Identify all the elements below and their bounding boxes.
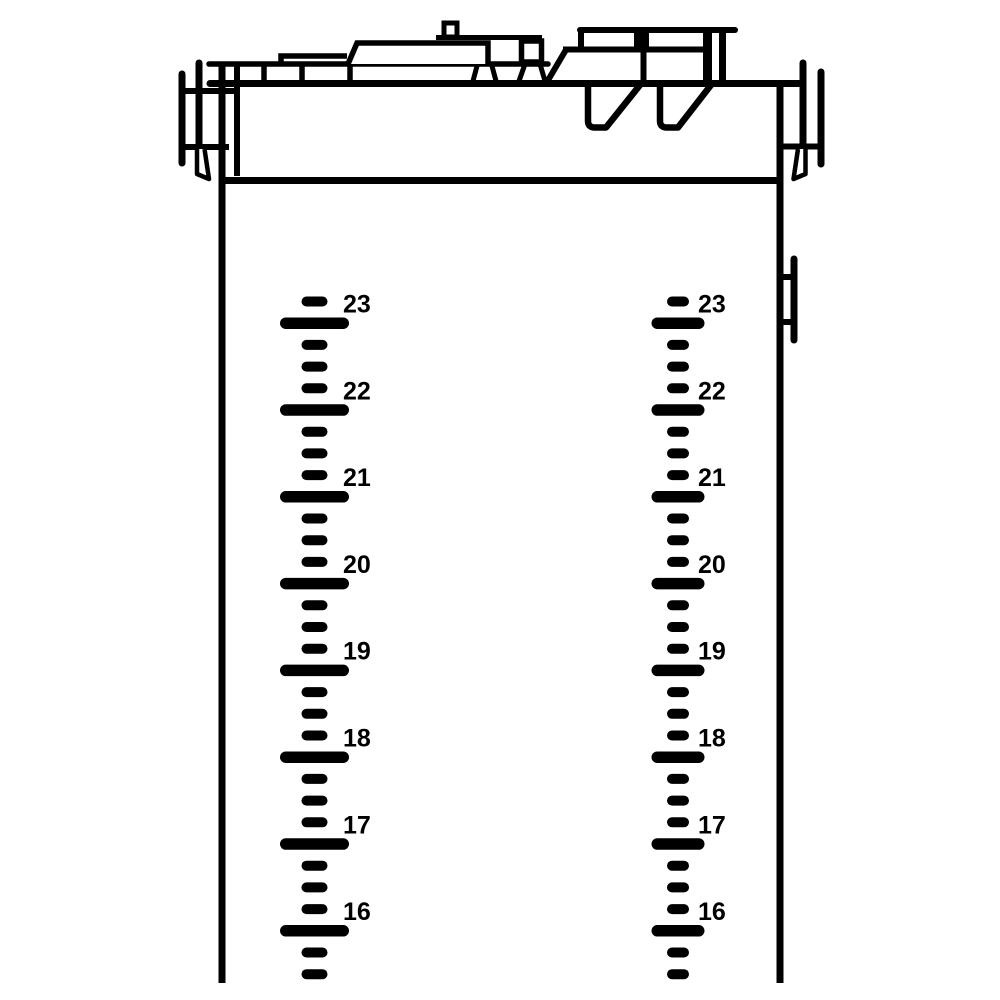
scale-minor-tick: [302, 383, 328, 393]
flange-hook: [197, 149, 209, 179]
scale-minor-tick: [667, 362, 689, 372]
scale-label: 18: [343, 725, 371, 753]
scale-minor-tick: [667, 948, 689, 958]
scale-major-tick: [652, 751, 705, 763]
level-scale-left: 2322212019181716: [280, 291, 371, 980]
scale-minor-tick: [667, 557, 689, 567]
scale-minor-tick: [667, 817, 689, 827]
scale-minor-tick: [667, 861, 689, 871]
scale-label: 22: [343, 377, 371, 405]
scale-minor-tick: [667, 882, 689, 892]
side-port-fitting: [783, 259, 794, 340]
scale-minor-tick: [667, 687, 689, 697]
scale-label: 17: [698, 811, 726, 839]
scale-minor-tick: [302, 535, 328, 545]
scale-label: 17: [343, 811, 371, 839]
scale-minor-tick: [667, 448, 689, 458]
scale-major-tick: [652, 317, 705, 329]
main-plate: [348, 43, 488, 64]
scale-minor-tick: [667, 644, 689, 654]
scale-minor-tick: [302, 622, 328, 632]
scale-label: 21: [343, 464, 371, 492]
scale-label: 19: [343, 638, 371, 666]
small-column: [522, 41, 542, 62]
scale-label: 23: [343, 291, 371, 319]
scale-minor-tick: [302, 969, 328, 979]
scale-label: 21: [698, 464, 726, 492]
scale-minor-tick: [302, 297, 328, 307]
scale-minor-tick: [667, 297, 689, 307]
scale-minor-tick: [667, 622, 689, 632]
scale-major-tick: [652, 925, 705, 937]
scale-label: 23: [698, 291, 726, 319]
scale-minor-tick: [667, 796, 689, 806]
scale-minor-tick: [302, 514, 328, 524]
scale-minor-tick: [667, 340, 689, 350]
scale-minor-tick: [667, 709, 689, 719]
scale-label: 20: [343, 551, 371, 579]
scale-major-tick: [280, 491, 349, 503]
right-post: [703, 31, 712, 81]
scale-minor-tick: [667, 514, 689, 524]
scale-major-tick: [280, 665, 349, 677]
scale-label: 19: [698, 638, 726, 666]
scale-major-tick: [652, 578, 705, 590]
scale-minor-tick: [667, 470, 689, 480]
lid-assembly: [209, 23, 803, 128]
scale-label: 18: [698, 725, 726, 753]
scale-major-tick: [652, 665, 705, 677]
scale-label: 22: [698, 377, 726, 405]
top-divider-block: [634, 29, 649, 48]
scale-major-tick: [280, 751, 349, 763]
scale-minor-tick: [302, 362, 328, 372]
scale-label: 20: [698, 551, 726, 579]
scale-minor-tick: [302, 687, 328, 697]
scale-minor-tick: [302, 861, 328, 871]
support-foot: [492, 66, 496, 81]
scale-minor-tick: [667, 904, 689, 914]
level-scale-right: 2322212019181716: [652, 291, 726, 980]
scale-minor-tick: [667, 535, 689, 545]
vent-knob: [444, 23, 457, 37]
scale-minor-tick: [302, 644, 328, 654]
scale-minor-tick: [302, 600, 328, 610]
scale-minor-tick: [302, 796, 328, 806]
scale-minor-tick: [667, 731, 689, 741]
scale-label: 16: [698, 898, 726, 926]
scale-minor-tick: [667, 427, 689, 437]
scale-minor-tick: [667, 969, 689, 979]
scale-minor-tick: [302, 904, 328, 914]
scale-major-tick: [280, 578, 349, 590]
scale-major-tick: [280, 925, 349, 937]
scale-major-tick: [652, 491, 705, 503]
hanging-bracket: [588, 85, 640, 128]
scale-minor-tick: [302, 448, 328, 458]
scale-major-tick: [280, 317, 349, 329]
scale-major-tick: [652, 404, 705, 416]
scale-minor-tick: [302, 557, 328, 567]
scale-minor-tick: [302, 427, 328, 437]
scale-minor-tick: [667, 383, 689, 393]
scale-minor-tick: [667, 774, 689, 784]
scale-minor-tick: [302, 709, 328, 719]
scale-major-tick: [280, 838, 349, 850]
scale-major-tick: [652, 838, 705, 850]
flange-hook: [794, 149, 806, 179]
scale-minor-tick: [302, 340, 328, 350]
scale-minor-tick: [302, 948, 328, 958]
scale-minor-tick: [667, 600, 689, 610]
scale-minor-tick: [302, 774, 328, 784]
scale-major-tick: [280, 404, 349, 416]
tank-diagram-canvas: 23222120191817162322212019181716: [0, 0, 1000, 1000]
level-scales: 23222120191817162322212019181716: [280, 291, 726, 980]
scale-label: 16: [343, 898, 371, 926]
scale-minor-tick: [302, 470, 328, 480]
hanging-bracket: [660, 85, 711, 128]
scale-minor-tick: [302, 731, 328, 741]
scale-minor-tick: [302, 817, 328, 827]
scale-minor-tick: [302, 882, 328, 892]
support-foot: [473, 66, 477, 81]
